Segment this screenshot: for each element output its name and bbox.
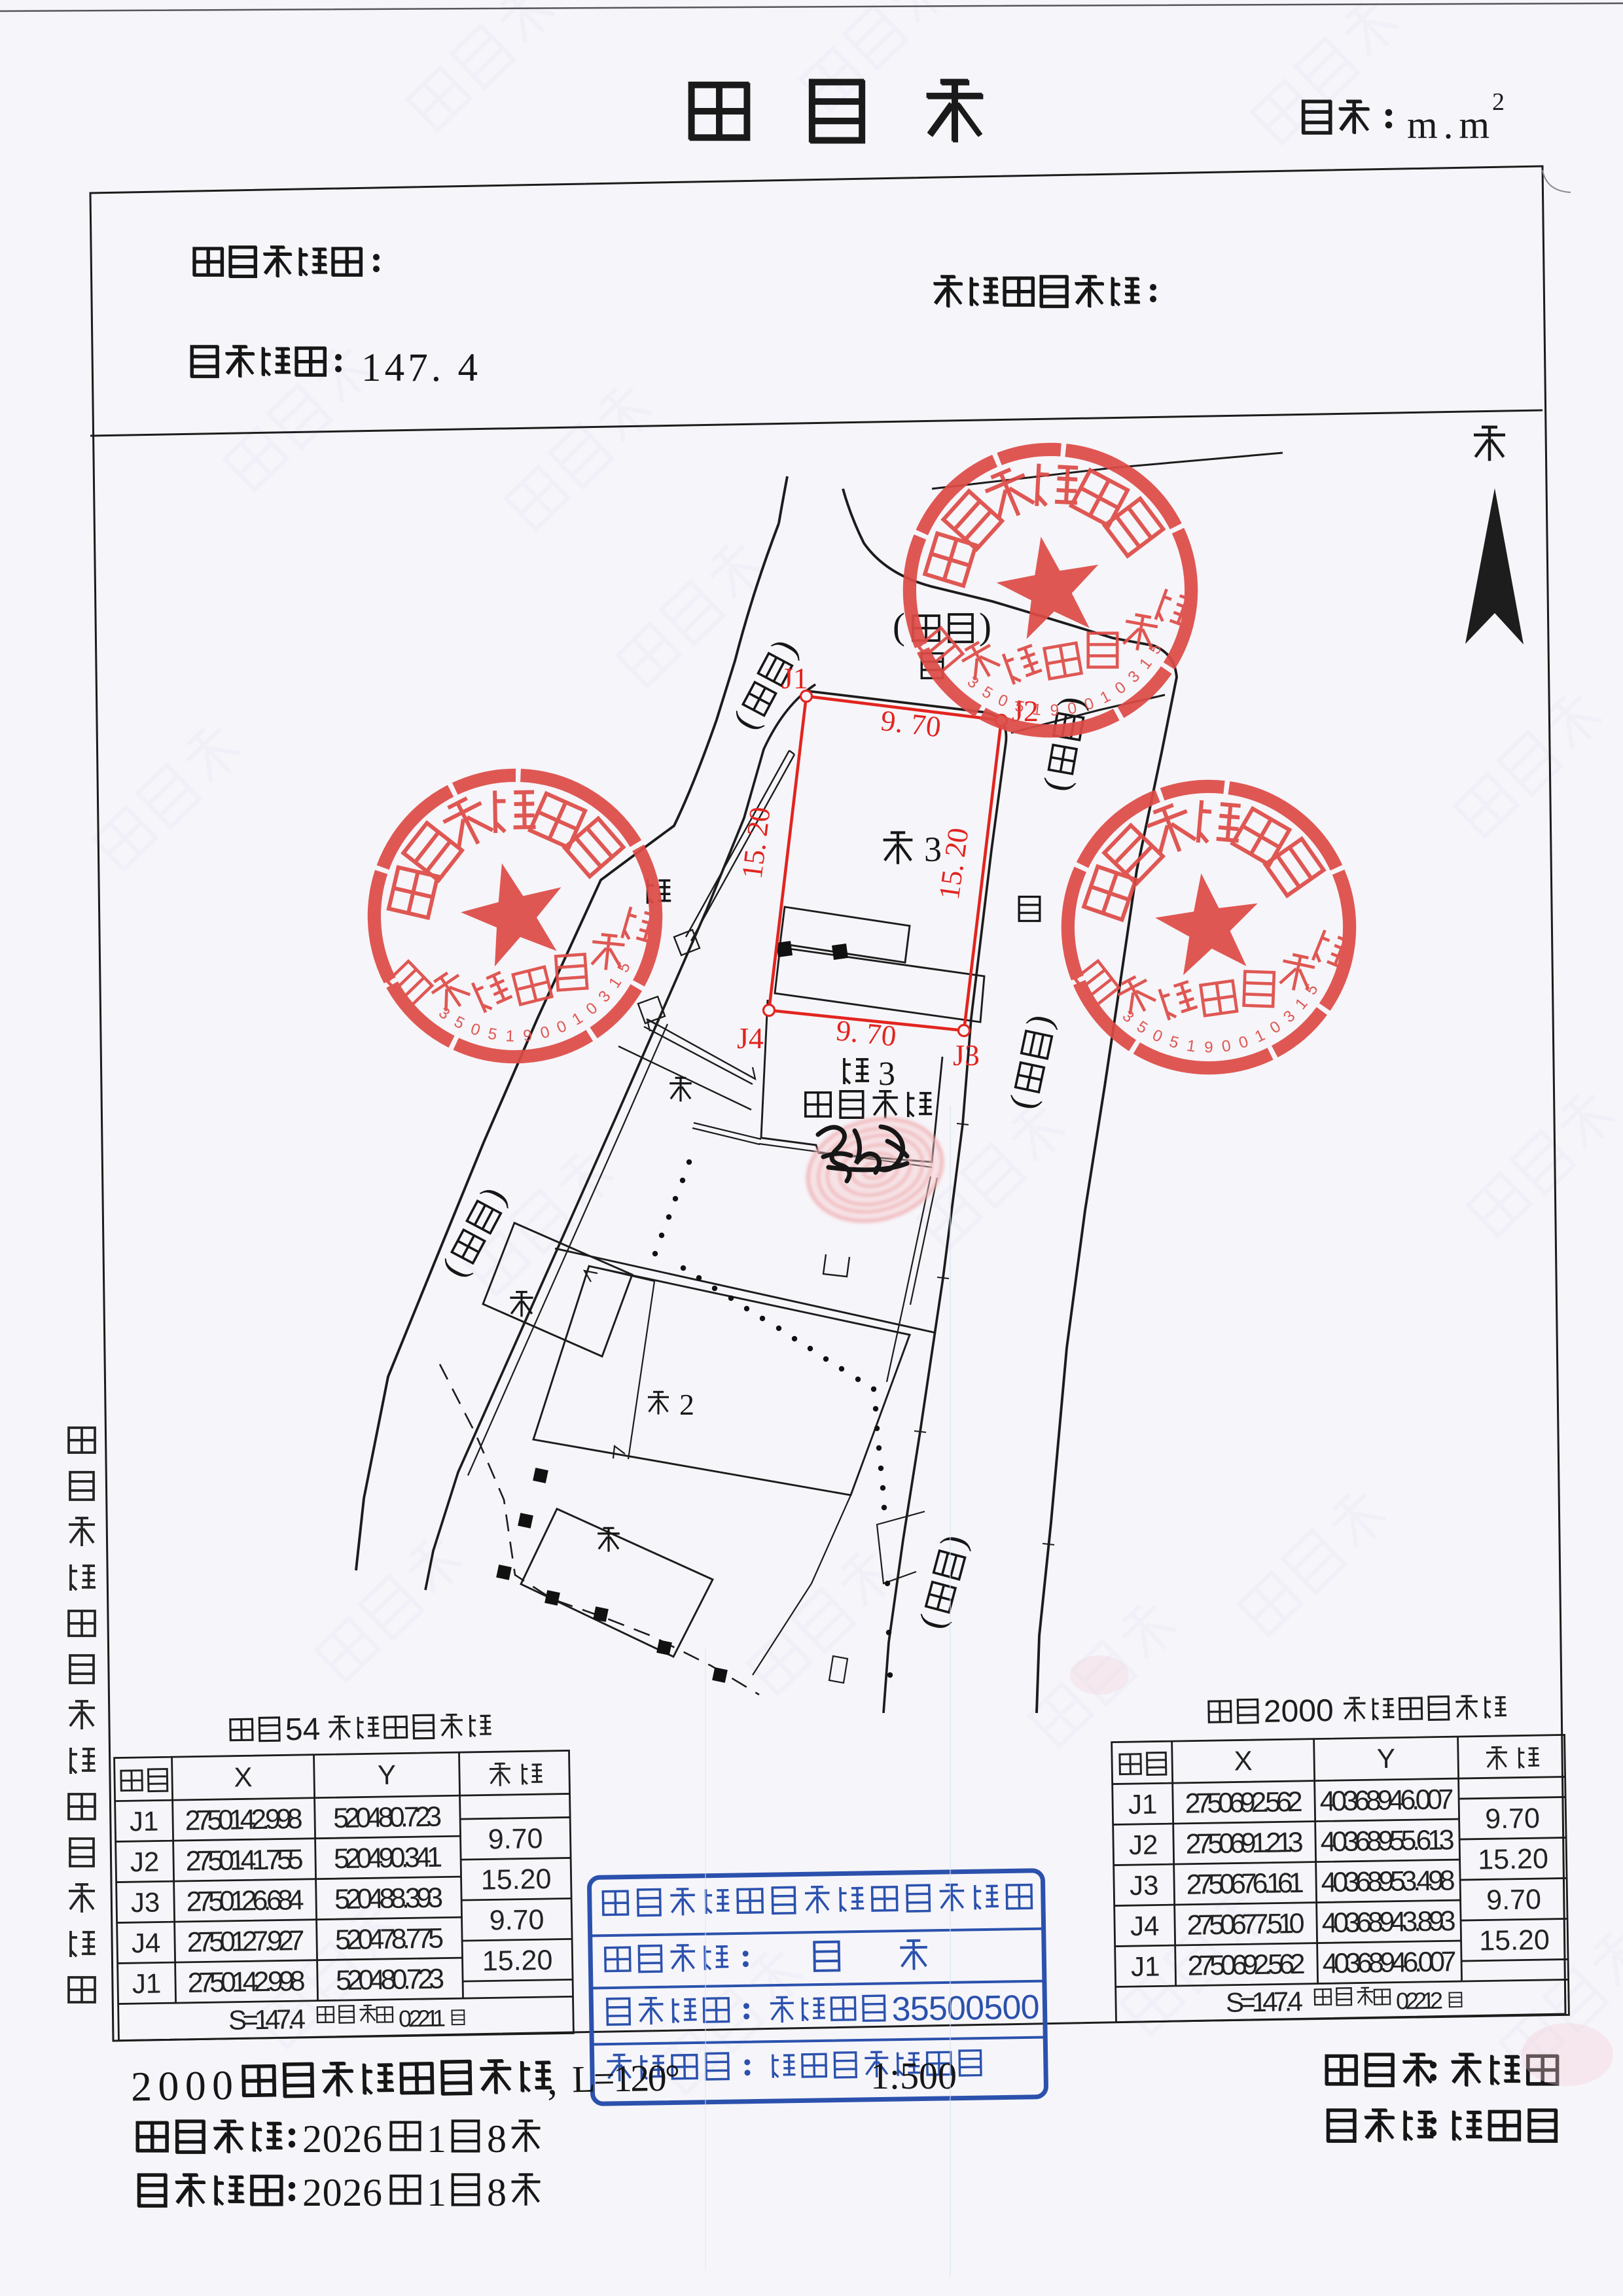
svg-text:40368955.613: 40368955.613 <box>1320 1824 1455 1858</box>
svg-text:L=120°: L=120° <box>572 2057 681 2101</box>
svg-text:2750126.684: 2750126.684 <box>186 1884 304 1918</box>
svg-text:8: 8 <box>487 2117 507 2161</box>
svg-text:2750691.213: 2750691.213 <box>1185 1827 1304 1860</box>
svg-text:40368946.007: 40368946.007 <box>1319 1784 1454 1817</box>
svg-text:147. 4: 147. 4 <box>361 346 478 390</box>
svg-text:54: 54 <box>285 1712 320 1748</box>
svg-text:15.20: 15.20 <box>482 1945 552 1977</box>
svg-text:J1: J1 <box>130 1806 159 1837</box>
svg-text:2: 2 <box>1492 88 1505 116</box>
svg-text:J3: J3 <box>953 1038 980 1072</box>
svg-text:J2: J2 <box>130 1846 160 1878</box>
svg-text:J1: J1 <box>1128 1788 1158 1820</box>
svg-text:2750141.755: 2750141.755 <box>185 1844 304 1877</box>
svg-text:2000: 2000 <box>1264 1693 1334 1729</box>
svg-text:J4: J4 <box>1130 1910 1160 1941</box>
svg-text:2: 2 <box>679 1388 694 1421</box>
svg-text:J1: J1 <box>1131 1951 1160 1982</box>
svg-text:15.20: 15.20 <box>1478 1843 1548 1876</box>
svg-text:15.20: 15.20 <box>480 1863 551 1896</box>
svg-text:S=147.4: S=147.4 <box>228 2004 306 2036</box>
svg-text:3: 3 <box>878 1055 895 1093</box>
svg-text:J1: J1 <box>132 1968 162 1999</box>
svg-text:2750142.998: 2750142.998 <box>185 1803 303 1837</box>
svg-text:1: 1 <box>427 2171 446 2214</box>
svg-text:J4: J4 <box>737 1021 764 1055</box>
svg-text:520488.393: 520488.393 <box>334 1882 444 1916</box>
svg-text:2026: 2026 <box>302 2171 382 2214</box>
svg-text:520478.775: 520478.775 <box>335 1923 444 1956</box>
svg-text:0.2212: 0.2212 <box>1396 1987 1444 2015</box>
svg-text:40368943.893: 40368943.893 <box>1321 1905 1456 1939</box>
svg-text:1:500: 1:500 <box>870 2055 957 2097</box>
svg-text:15.20: 15.20 <box>1479 1924 1550 1957</box>
svg-text:J1: J1 <box>781 662 808 695</box>
svg-text:X: X <box>234 1761 253 1792</box>
svg-text:9.70: 9.70 <box>1485 1803 1540 1835</box>
svg-text:520480.723: 520480.723 <box>336 1964 445 1997</box>
svg-text:J4: J4 <box>132 1928 161 1959</box>
svg-text:9. 70: 9. 70 <box>834 1014 898 1052</box>
svg-text:2750142.998: 2750142.998 <box>187 1966 306 1999</box>
svg-text:520490.341: 520490.341 <box>334 1842 443 1875</box>
svg-text:X: X <box>1234 1745 1253 1776</box>
svg-text:S=147.4: S=147.4 <box>1226 1986 1304 2018</box>
svg-text:2750676.161: 2750676.161 <box>1186 1867 1304 1901</box>
svg-text:2026: 2026 <box>302 2117 382 2161</box>
svg-text:9.70: 9.70 <box>489 1904 544 1936</box>
svg-text:J3: J3 <box>1130 1869 1159 1901</box>
svg-text:0.2211: 0.2211 <box>399 2005 446 2032</box>
svg-text:40368946.007: 40368946.007 <box>1322 1946 1457 1979</box>
svg-text:m.m: m.m <box>1407 103 1489 147</box>
svg-text:40368953.498: 40368953.498 <box>1321 1865 1455 1898</box>
svg-text:Y: Y <box>1377 1743 1396 1774</box>
svg-text:J2: J2 <box>1129 1829 1158 1860</box>
svg-text:9.70: 9.70 <box>488 1823 543 1855</box>
svg-text:1: 1 <box>427 2117 446 2161</box>
svg-text:9.70: 9.70 <box>1486 1884 1541 1916</box>
svg-text:J3: J3 <box>131 1887 160 1918</box>
svg-text:3: 3 <box>924 830 942 869</box>
svg-text:2750692.562: 2750692.562 <box>1187 1949 1306 1982</box>
svg-text:35500500: 35500500 <box>891 1988 1040 2029</box>
svg-text:8: 8 <box>487 2171 507 2214</box>
svg-text:2750677.510: 2750677.510 <box>1186 1908 1305 1941</box>
svg-text:2750127.927: 2750127.927 <box>187 1925 305 1958</box>
svg-text:,: , <box>547 2058 558 2103</box>
svg-text:): ) <box>979 606 991 647</box>
svg-text:Y: Y <box>378 1759 397 1790</box>
svg-text:520480.723: 520480.723 <box>333 1801 442 1835</box>
svg-text:2750692.562: 2750692.562 <box>1185 1786 1303 1820</box>
svg-text:(: ( <box>893 606 905 647</box>
